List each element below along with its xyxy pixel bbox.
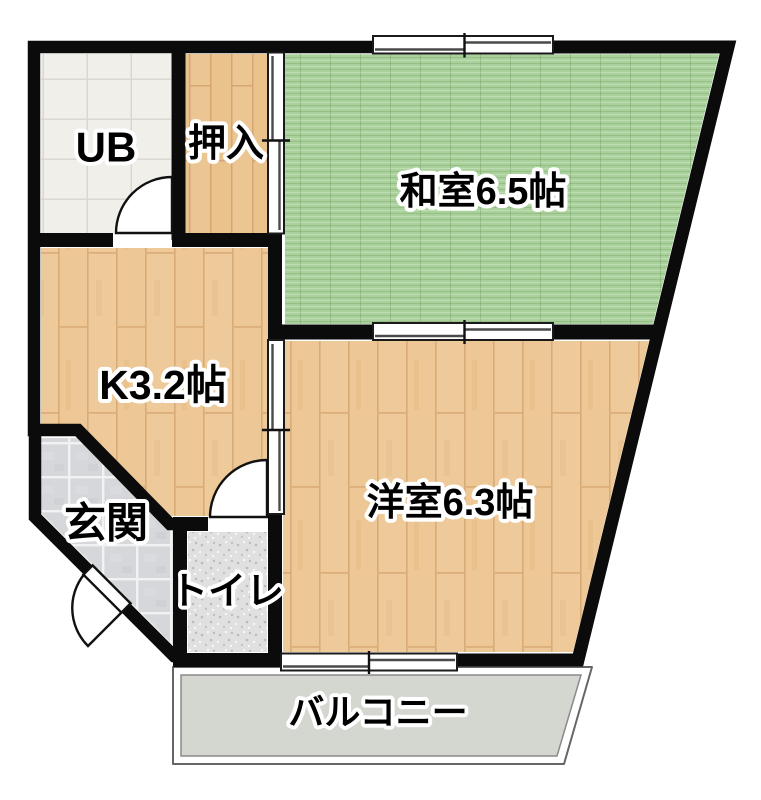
window-balcony: [281, 651, 457, 674]
ub-label: UB: [76, 124, 137, 171]
oshiire-label: 押入: [188, 123, 264, 165]
room-floors: [41, 54, 719, 652]
kitchen-label: K3.2帖: [99, 362, 227, 408]
window-top: [373, 33, 553, 58]
toilet-label: トイレ: [170, 571, 284, 613]
youshitsu-label: 洋室6.3帖: [367, 481, 534, 524]
window-washitsu-youshitsu: [373, 320, 553, 344]
floor-plan-svg: UB 押入 和室6.5帖 K3.2帖 玄関 トイレ 洋室6.3帖 バルコニー: [0, 0, 761, 800]
floor-plan: UB 押入 和室6.5帖 K3.2帖 玄関 トイレ 洋室6.3帖 バルコニー: [0, 0, 761, 800]
balcony-label: バルコニー: [288, 692, 467, 733]
genkan-label: 玄関: [64, 500, 148, 547]
washitsu-label: 和室6.5帖: [400, 170, 567, 213]
